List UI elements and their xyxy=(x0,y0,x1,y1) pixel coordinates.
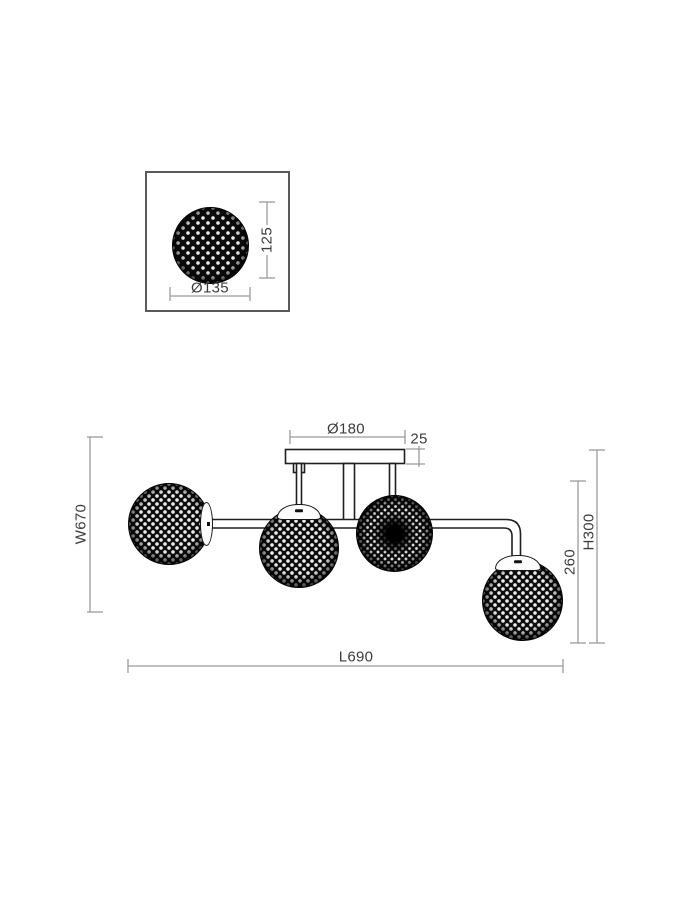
dim-label-canopy-diameter: Ø180 xyxy=(327,422,365,437)
globe-left-socket xyxy=(200,502,213,546)
dim-label-canopy-height: 25 xyxy=(410,432,427,447)
globe-left xyxy=(128,483,210,565)
dim-label-total-height: H300 xyxy=(582,513,597,550)
socket-pin xyxy=(207,522,210,526)
globe-second xyxy=(259,508,339,588)
detail-globe xyxy=(172,207,249,284)
dim-line-canopy-height xyxy=(406,446,425,467)
globe-right xyxy=(482,560,563,641)
dim-label-drop-height: 260 xyxy=(563,549,578,575)
cap-slot xyxy=(295,509,303,513)
ceiling-plate xyxy=(286,450,405,464)
cap-slot xyxy=(514,560,522,564)
dim-label-length: L690 xyxy=(339,650,374,665)
globe-third-front xyxy=(356,495,433,572)
technical-drawing-canvas: Ø135 125 Ø180 25 W670 H300 260 L690 xyxy=(0,0,675,900)
dim-label-shade-diameter: Ø135 xyxy=(191,281,229,296)
dim-label-width: W670 xyxy=(74,504,89,544)
stem-left xyxy=(297,464,302,507)
stem-middle xyxy=(344,464,355,521)
fixture-linework xyxy=(0,0,675,900)
dim-label-shade-height: 125 xyxy=(260,225,275,255)
